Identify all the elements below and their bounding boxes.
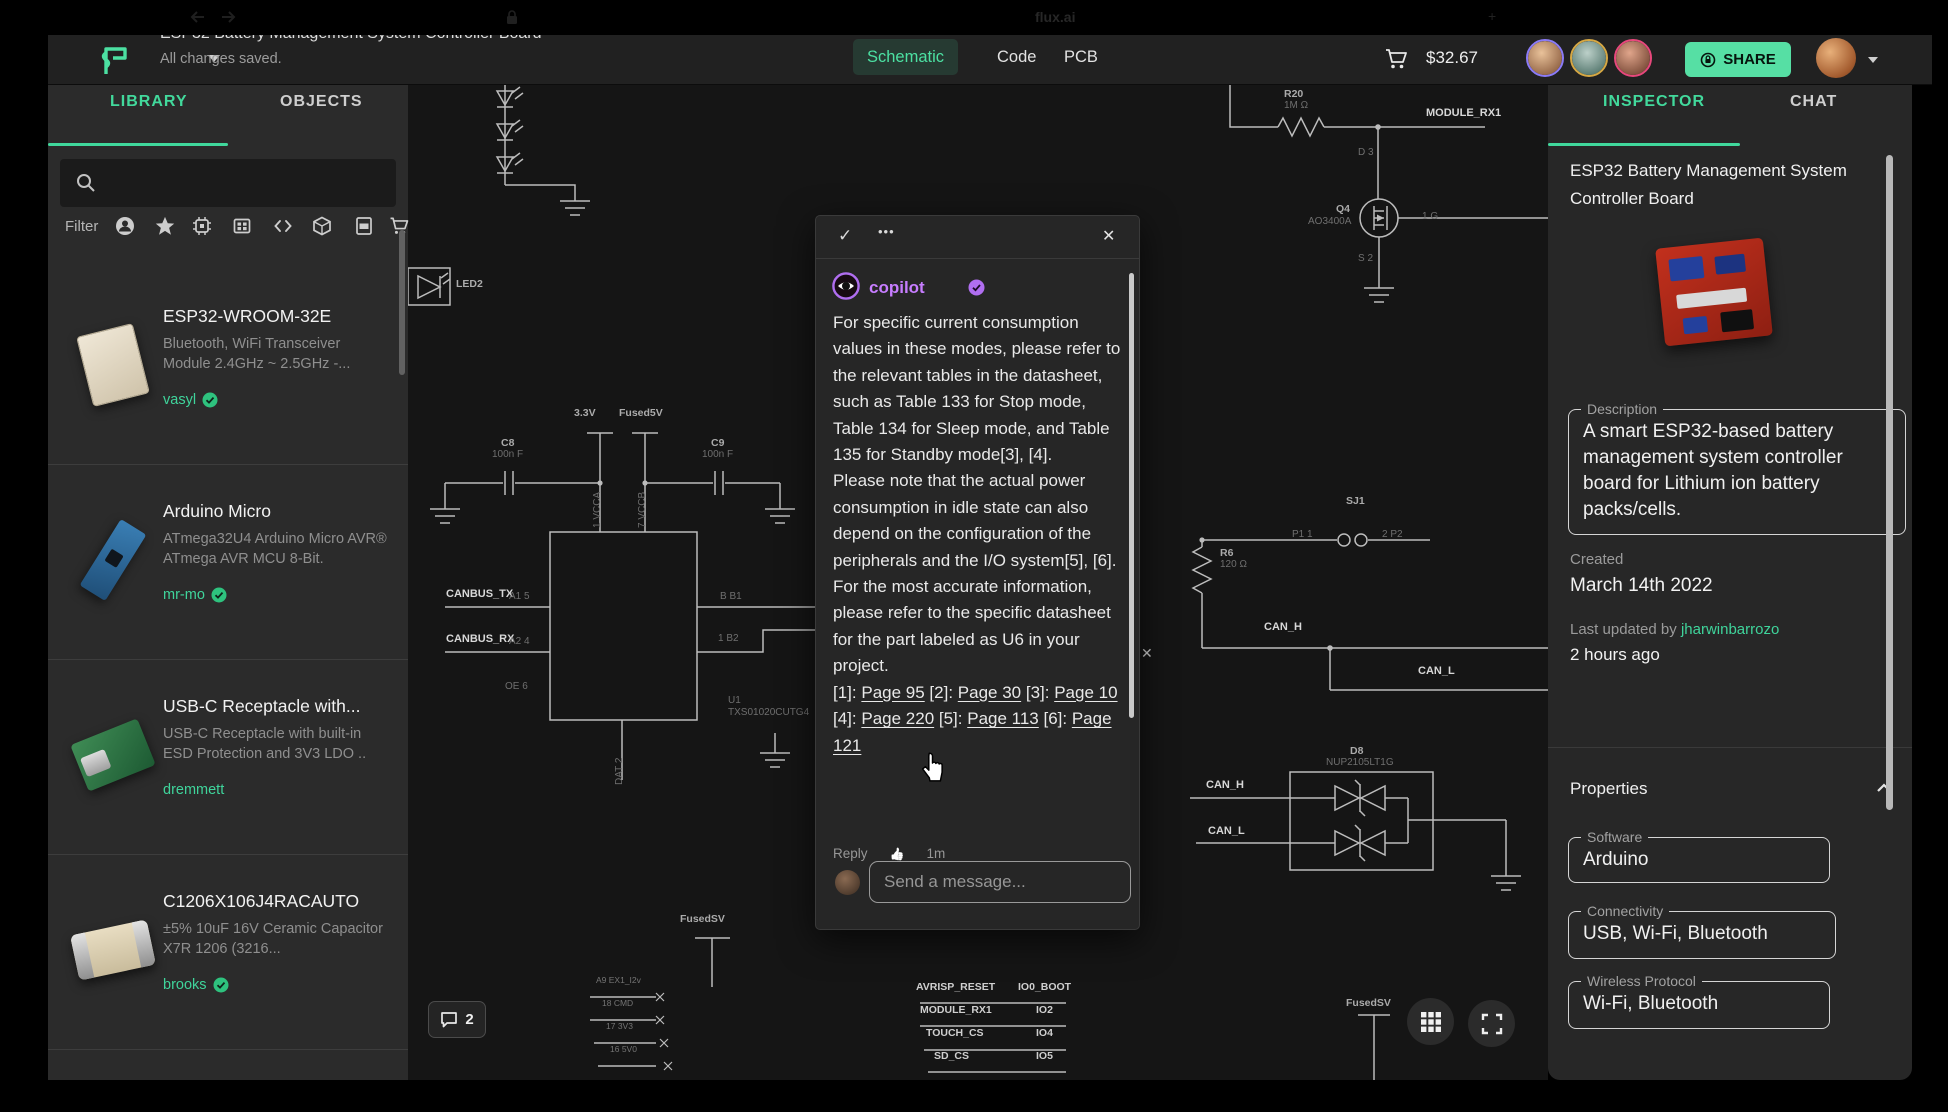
schematic-label: 2 P2 — [1382, 529, 1403, 540]
schematic-label: 1M Ω — [1284, 100, 1308, 111]
schematic-label: A1 5 — [509, 591, 530, 602]
schematic-label: IO2 — [1036, 1004, 1053, 1016]
property-label: Connectivity — [1581, 903, 1669, 919]
lock-icon — [1700, 52, 1716, 68]
filter-pdf-icon[interactable] — [351, 213, 377, 239]
schematic-label: TXS01020CUTG4 — [728, 707, 809, 718]
library-item[interactable]: C1206X106J4RACAUTO ±5% 10uF 16V Ceramic … — [48, 855, 408, 1050]
schematic-label: CAN_H — [1206, 779, 1244, 791]
component-thumbnail — [70, 695, 156, 815]
schematic-label: NUP2105LT1G — [1326, 757, 1394, 768]
library-sidebar: LIBRARY OBJECTS Filter — [48, 85, 408, 1080]
component-author[interactable]: dremmett — [163, 782, 224, 798]
tab-pcb[interactable]: PCB — [1050, 39, 1112, 75]
browser-tab-title: flux.ai — [1035, 9, 1075, 25]
schematic-label: SD_CS — [934, 1050, 969, 1062]
updated-time: 2 hours ago — [1570, 645, 1660, 665]
comment-paragraph: Please note that the actual power consum… — [833, 468, 1123, 574]
comment-paragraph: For specific current consumption values … — [833, 310, 1123, 468]
schematic-label: CAN_L — [1418, 665, 1455, 677]
citation-page-link[interactable]: Page 30 — [958, 683, 1021, 702]
filter-star-icon[interactable] — [152, 213, 178, 239]
property-label: Wireless Protocol — [1581, 973, 1702, 989]
property-label: Software — [1581, 829, 1648, 845]
component-thumbnail — [70, 500, 156, 620]
library-item[interactable]: USB-C Receptacle with... USB-C Receptacl… — [48, 660, 408, 855]
citation-index: [4]: — [833, 709, 861, 728]
popup-header: ✓ ••• ✕ — [816, 216, 1139, 259]
browser-nav-icons — [190, 8, 280, 26]
cart-total: $32.67 — [1426, 48, 1478, 68]
section-divider — [1548, 747, 1912, 748]
component-author[interactable]: vasyl — [163, 392, 196, 408]
property-value: Arduino — [1569, 845, 1829, 871]
component-author[interactable]: mr-mo — [163, 587, 205, 603]
schematic-label: MODULE_RX1 — [920, 1004, 992, 1016]
citation-index: [5]: — [934, 709, 967, 728]
copilot-verified-badge-icon — [968, 279, 985, 296]
library-search-input[interactable] — [60, 159, 396, 207]
user-avatar[interactable] — [1816, 38, 1856, 78]
component-name: Arduino Micro — [163, 501, 398, 522]
collaborator-avatar-3[interactable] — [1614, 39, 1652, 77]
library-scrollbar[interactable] — [399, 230, 405, 375]
browser-chrome-mask: flux.ai + — [0, 0, 1948, 35]
schematic-label: 1 B2 — [718, 633, 739, 644]
citation-page-link[interactable]: Page 95 — [861, 683, 924, 702]
schematic-label: MODULE_RX1 — [1426, 107, 1501, 119]
comment-timestamp: 1m — [926, 846, 945, 861]
new-tab-icon: + — [1488, 8, 1496, 24]
schematic-label: B B1 — [720, 591, 742, 602]
citation-index: [1]: — [833, 683, 861, 702]
property-connectivity[interactable]: Connectivity USB, Wi-Fi, Bluetooth — [1568, 903, 1836, 959]
filter-package-icon[interactable] — [309, 213, 335, 239]
tab-chat[interactable]: CHAT — [1790, 93, 1837, 111]
schematic-label: P1 1 — [1292, 529, 1313, 540]
component-description: USB-C Receptacle with built-in ESD Prote… — [163, 724, 391, 766]
schematic-label: D 3 — [1358, 147, 1374, 158]
schematic-label: R6 — [1220, 547, 1233, 559]
verified-badge-icon — [202, 392, 218, 408]
flux-logo-icon[interactable] — [92, 41, 136, 79]
schematic-label: FusedSV — [1346, 997, 1391, 1009]
schematic-label: R20 — [1284, 88, 1303, 100]
search-icon — [75, 172, 97, 194]
schematic-label: AO3400A — [1308, 216, 1351, 227]
citation: [4]: Page 220 — [833, 709, 934, 728]
close-icon[interactable]: ✕ — [1102, 226, 1115, 246]
mouse-cursor-pointer — [918, 752, 948, 784]
component-name: C1206X106J4RACAUTO — [163, 891, 398, 912]
filter-code-icon[interactable] — [270, 213, 296, 239]
reply-button[interactable]: Reply — [833, 846, 868, 861]
updated-by-user-link[interactable]: jharwinbarrozo — [1681, 621, 1779, 638]
citation-index: [2]: — [925, 683, 958, 702]
filter-user-icon[interactable] — [112, 213, 138, 239]
schematic-label: LED2 — [456, 278, 483, 290]
schematic-label: 100n F — [702, 449, 733, 460]
share-label: SHARE — [1723, 51, 1776, 68]
component-thumbnail — [70, 890, 156, 1010]
collaborator-avatar-1[interactable] — [1526, 39, 1564, 77]
schematic-label: IO5 — [1036, 1050, 1053, 1062]
dismiss-x-icon[interactable]: ✕ — [1141, 645, 1153, 662]
comment-paragraph: For the most accurate information, pleas… — [833, 574, 1123, 680]
created-value: March 14th 2022 — [1570, 575, 1713, 597]
schematic-label: C8 — [501, 437, 514, 449]
citation: [1]: Page 95 — [833, 683, 925, 702]
inspector-sidebar: INSPECTOR CHAT ESP32 Battery Management … — [1548, 85, 1912, 1080]
grid-toggle-button[interactable] — [1407, 998, 1454, 1045]
tab-library[interactable]: LIBRARY — [110, 93, 188, 111]
schematic-label: CAN_H — [1264, 621, 1302, 633]
description-label: Description — [1581, 401, 1663, 417]
current-user-avatar — [835, 870, 860, 895]
tab-code[interactable]: Code — [983, 39, 1050, 75]
schematic-label: CAN_L — [1208, 825, 1245, 837]
properties-header[interactable]: Properties — [1570, 779, 1647, 799]
fullscreen-button[interactable] — [1468, 1000, 1515, 1047]
schematic-label: U1 — [728, 695, 741, 706]
comment-bubble-icon — [440, 1011, 458, 1028]
library-item[interactable]: ESP32-WROOM-32E Bluetooth, WiFi Transcei… — [48, 270, 408, 465]
comment-author[interactable]: copilot — [869, 278, 925, 298]
flux-app-window: ESP32 Battery Management System Controll… — [48, 35, 1932, 1080]
component-thumbnail — [70, 305, 156, 425]
schematic-label: CANBUS_TX — [446, 588, 513, 600]
comment-thread-popup: ✓ ••• ✕ copilot For specific current con… — [815, 215, 1140, 930]
board-preview-image[interactable] — [1655, 238, 1773, 347]
inspector-scrollbar[interactable] — [1886, 155, 1893, 810]
component-name: ESP32-WROOM-32E — [163, 306, 398, 327]
updated-label: Last updated by — [1570, 621, 1677, 638]
schematic-label: 120 Ω — [1220, 559, 1247, 570]
fullscreen-icon — [1481, 1013, 1503, 1035]
collaborator-avatar-2[interactable] — [1570, 39, 1608, 77]
schematic-label: IO4 — [1036, 1027, 1053, 1039]
message-input[interactable] — [869, 861, 1131, 903]
citation: [5]: Page 113 — [934, 709, 1039, 728]
citation-page-link[interactable]: Page 10 — [1054, 683, 1117, 702]
citation-page-link[interactable]: Page 113 — [967, 709, 1039, 728]
active-tab-underline — [48, 143, 228, 146]
citation: [2]: Page 30 — [925, 683, 1021, 702]
schematic-label: Q4 — [1336, 203, 1350, 215]
schematic-label: IO0_BOOT — [1018, 981, 1071, 993]
schematic-label: SJ1 — [1346, 495, 1365, 507]
top-bar: ESP32 Battery Management System Controll… — [48, 35, 1932, 85]
comment-count: 2 — [465, 1011, 473, 1028]
schematic-label: Fused5V — [619, 407, 663, 419]
comment-count-badge[interactable]: 2 — [428, 1001, 486, 1038]
copilot-avatar-icon — [832, 272, 860, 300]
schematic-label: 18 CMD — [602, 998, 633, 1008]
like-icon[interactable]: 👍 — [890, 847, 905, 861]
schematic-label: C9 — [711, 437, 724, 449]
description-text: A smart ESP32-based battery management s… — [1569, 417, 1859, 523]
share-button[interactable]: SHARE — [1685, 42, 1791, 77]
schematic-label: D8 — [1350, 745, 1363, 757]
schematic-label: 16 5V0 — [610, 1044, 637, 1054]
citation-page-link[interactable]: Page 220 — [861, 709, 934, 728]
schematic-label: 3.3V — [574, 407, 596, 419]
schematic-label: 1 G — [1422, 211, 1438, 222]
citation-links: [1]: Page 95 [2]: Page 30 [3]: Page 10 [… — [833, 680, 1123, 759]
schematic-label: OE 6 — [505, 681, 528, 692]
schematic-label: 7 VCCB — [637, 492, 648, 528]
autosave-status: All changes saved. — [160, 51, 282, 67]
verified-badge-icon — [211, 587, 227, 603]
schematic-label: AVRISP_RESET — [916, 981, 995, 993]
screenshot-stage: ESP32 Battery Management System Controll… — [0, 0, 1948, 1112]
schematic-label: CANBUS_RX — [446, 633, 514, 645]
schematic-label: 100n F — [492, 449, 523, 460]
citation: [3]: Page 10 — [1021, 683, 1117, 702]
filter-module-icon[interactable] — [229, 213, 255, 239]
filter-chip-icon[interactable] — [189, 213, 215, 239]
grid-icon — [1420, 1011, 1442, 1033]
citation-index: [6]: — [1039, 709, 1072, 728]
board-title: ESP32 Battery Management System Controll… — [1570, 157, 1870, 213]
property-wireless-protocol[interactable]: Wireless Protocol Wi-Fi, Bluetooth — [1568, 973, 1830, 1029]
padlock-icon — [505, 9, 519, 25]
verified-badge-icon — [213, 977, 229, 993]
schematic-label: A2 4 — [509, 636, 530, 647]
component-description: ±5% 10uF 16V Ceramic Capacitor X7R 1206 … — [163, 919, 391, 961]
library-item[interactable]: Arduino Micro ATmega32U4 Arduino Micro A… — [48, 465, 408, 660]
schematic-label: FusedSV — [680, 913, 725, 925]
tab-schematic[interactable]: Schematic — [853, 39, 958, 75]
component-description: ATmega32U4 Arduino Micro AVR® ATmega AVR… — [163, 529, 391, 571]
created-label: Created — [1570, 551, 1623, 568]
component-author[interactable]: brooks — [163, 977, 207, 993]
schematic-label: 1 VCCA — [592, 492, 603, 528]
schematic-label: S 2 — [1358, 253, 1373, 264]
component-description: Bluetooth, WiFi Transceiver Module 2.4GH… — [163, 334, 391, 376]
cart-icon[interactable] — [1383, 46, 1409, 72]
tab-inspector[interactable]: INSPECTOR — [1603, 93, 1705, 111]
citation-index: [3]: — [1021, 683, 1054, 702]
schematic-label: 17 3V3 — [606, 1021, 633, 1031]
popup-scrollbar[interactable] — [1129, 273, 1134, 718]
schematic-label: DAT 2 — [614, 758, 625, 785]
schematic-label: A9 EX1_I2v — [596, 975, 641, 985]
property-software[interactable]: Software Arduino — [1568, 829, 1830, 883]
property-value: USB, Wi-Fi, Bluetooth — [1569, 919, 1835, 945]
active-tab-underline — [1548, 143, 1740, 146]
component-name: USB-C Receptacle with... — [163, 696, 398, 717]
tab-objects[interactable]: OBJECTS — [280, 93, 363, 111]
comment-body: For specific current consumption values … — [833, 310, 1123, 759]
resolve-check-icon[interactable]: ✓ — [838, 226, 852, 246]
property-value: Wi-Fi, Bluetooth — [1569, 989, 1829, 1015]
description-field[interactable]: Description A smart ESP32-based battery … — [1568, 401, 1906, 535]
user-menu-caret-icon[interactable] — [1868, 57, 1878, 63]
more-options-icon[interactable]: ••• — [878, 224, 895, 239]
filter-label: Filter — [65, 218, 98, 235]
schematic-label: TOUCH_CS — [926, 1027, 984, 1039]
